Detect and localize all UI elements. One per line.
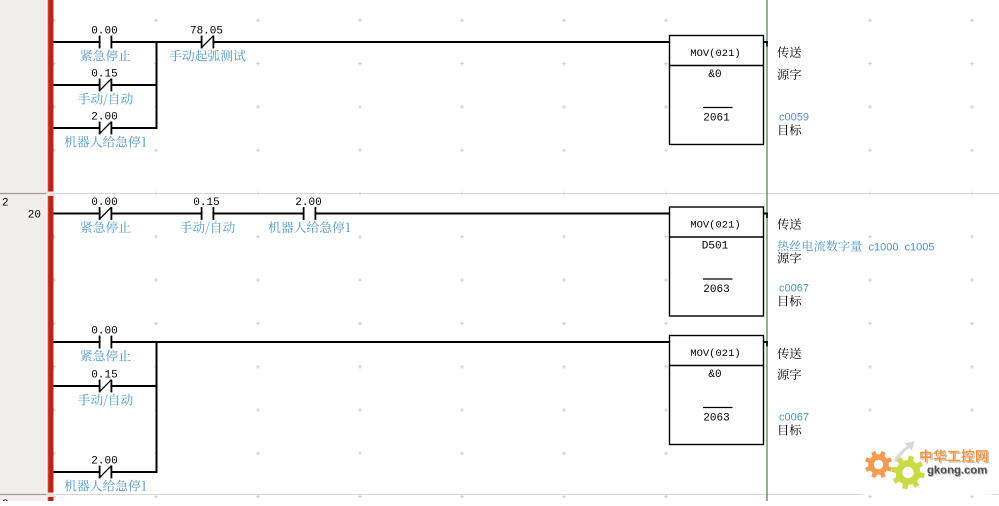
- svg-text:20: 20: [28, 210, 41, 222]
- svg-text:gkong.com: gkong.com: [927, 465, 987, 477]
- svg-text:0.00: 0.00: [91, 197, 117, 209]
- svg-text:D501: D501: [702, 241, 729, 253]
- svg-text:MOV(021): MOV(021): [690, 48, 740, 60]
- svg-text:MOV(021): MOV(021): [690, 219, 740, 231]
- svg-text:&0: &0: [708, 369, 721, 381]
- svg-text:2.00: 2.00: [91, 456, 117, 468]
- svg-text:2: 2: [2, 198, 9, 210]
- svg-text:2.00: 2.00: [295, 197, 321, 209]
- svg-text:78.05: 78.05: [190, 26, 223, 38]
- svg-text:0.00: 0.00: [91, 26, 117, 38]
- svg-text:0.15: 0.15: [91, 69, 117, 81]
- svg-text:0.00: 0.00: [91, 326, 117, 338]
- svg-text:c1005: c1005: [905, 242, 935, 254]
- svg-text:c0067: c0067: [779, 283, 809, 295]
- svg-text:c0059: c0059: [779, 112, 809, 124]
- svg-text:2.00: 2.00: [91, 112, 117, 124]
- svg-text:&0: &0: [708, 69, 721, 81]
- svg-text:2063: 2063: [703, 413, 729, 425]
- svg-text:c1000: c1000: [869, 242, 899, 254]
- svg-text:2063: 2063: [703, 284, 729, 296]
- svg-text:0.15: 0.15: [91, 370, 117, 382]
- svg-text:2061: 2061: [703, 113, 730, 125]
- svg-text:MOV(021): MOV(021): [690, 348, 740, 360]
- svg-text:0.15: 0.15: [193, 197, 219, 209]
- svg-text:c0067: c0067: [779, 412, 809, 424]
